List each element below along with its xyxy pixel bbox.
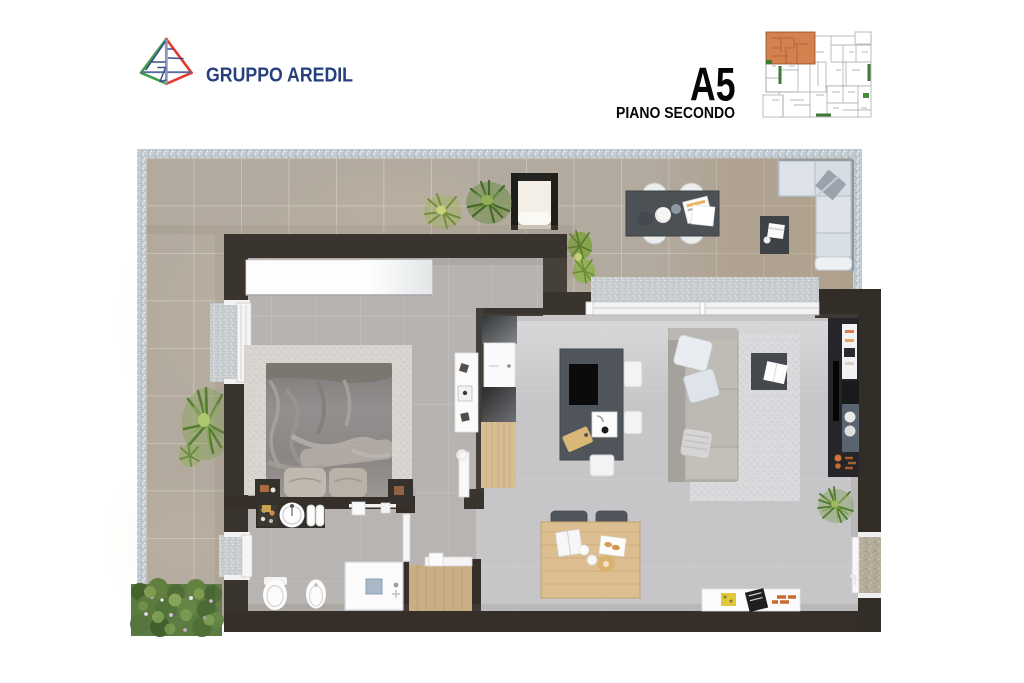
svg-text:GRUPPO AREDIL: GRUPPO AREDIL: [206, 65, 353, 87]
svg-text:PIANO SECONDO: PIANO SECONDO: [616, 105, 735, 122]
svg-text:A5: A5: [690, 58, 736, 111]
